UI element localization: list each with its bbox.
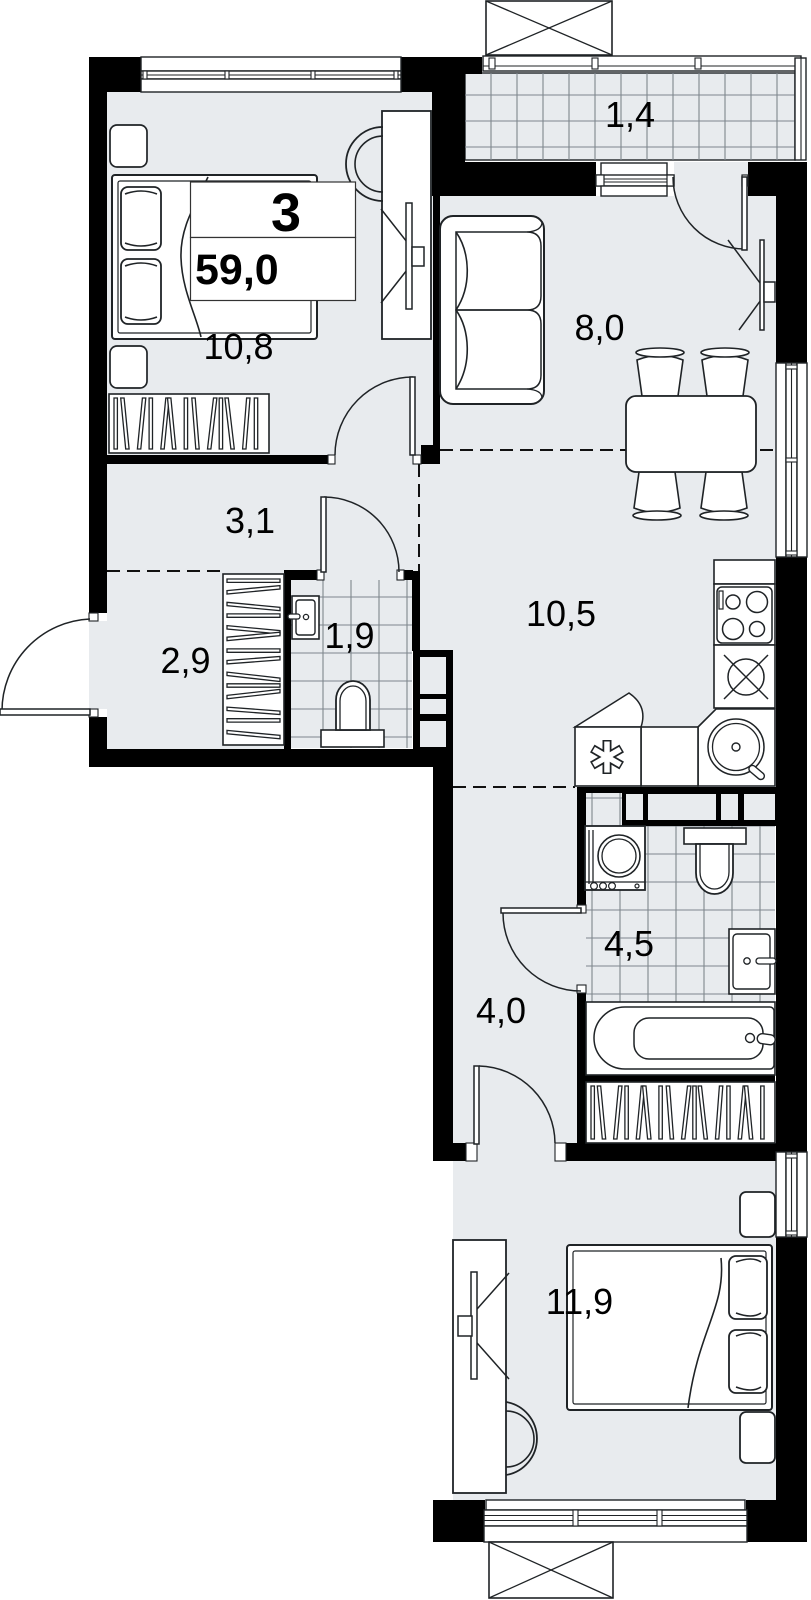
svg-text:59,0: 59,0 xyxy=(195,246,279,294)
svg-text:3,1: 3,1 xyxy=(225,500,275,541)
svg-text:3: 3 xyxy=(271,183,301,243)
svg-text:11,9: 11,9 xyxy=(546,1281,613,1322)
svg-text:4,0: 4,0 xyxy=(476,990,526,1031)
svg-text:10,8: 10,8 xyxy=(203,326,273,367)
svg-text:2,9: 2,9 xyxy=(160,640,210,681)
svg-text:1,9: 1,9 xyxy=(324,615,374,656)
svg-text:1,4: 1,4 xyxy=(605,94,655,135)
svg-text:8,0: 8,0 xyxy=(574,307,624,348)
svg-text:4,5: 4,5 xyxy=(604,923,654,964)
svg-text:10,5: 10,5 xyxy=(526,593,596,634)
